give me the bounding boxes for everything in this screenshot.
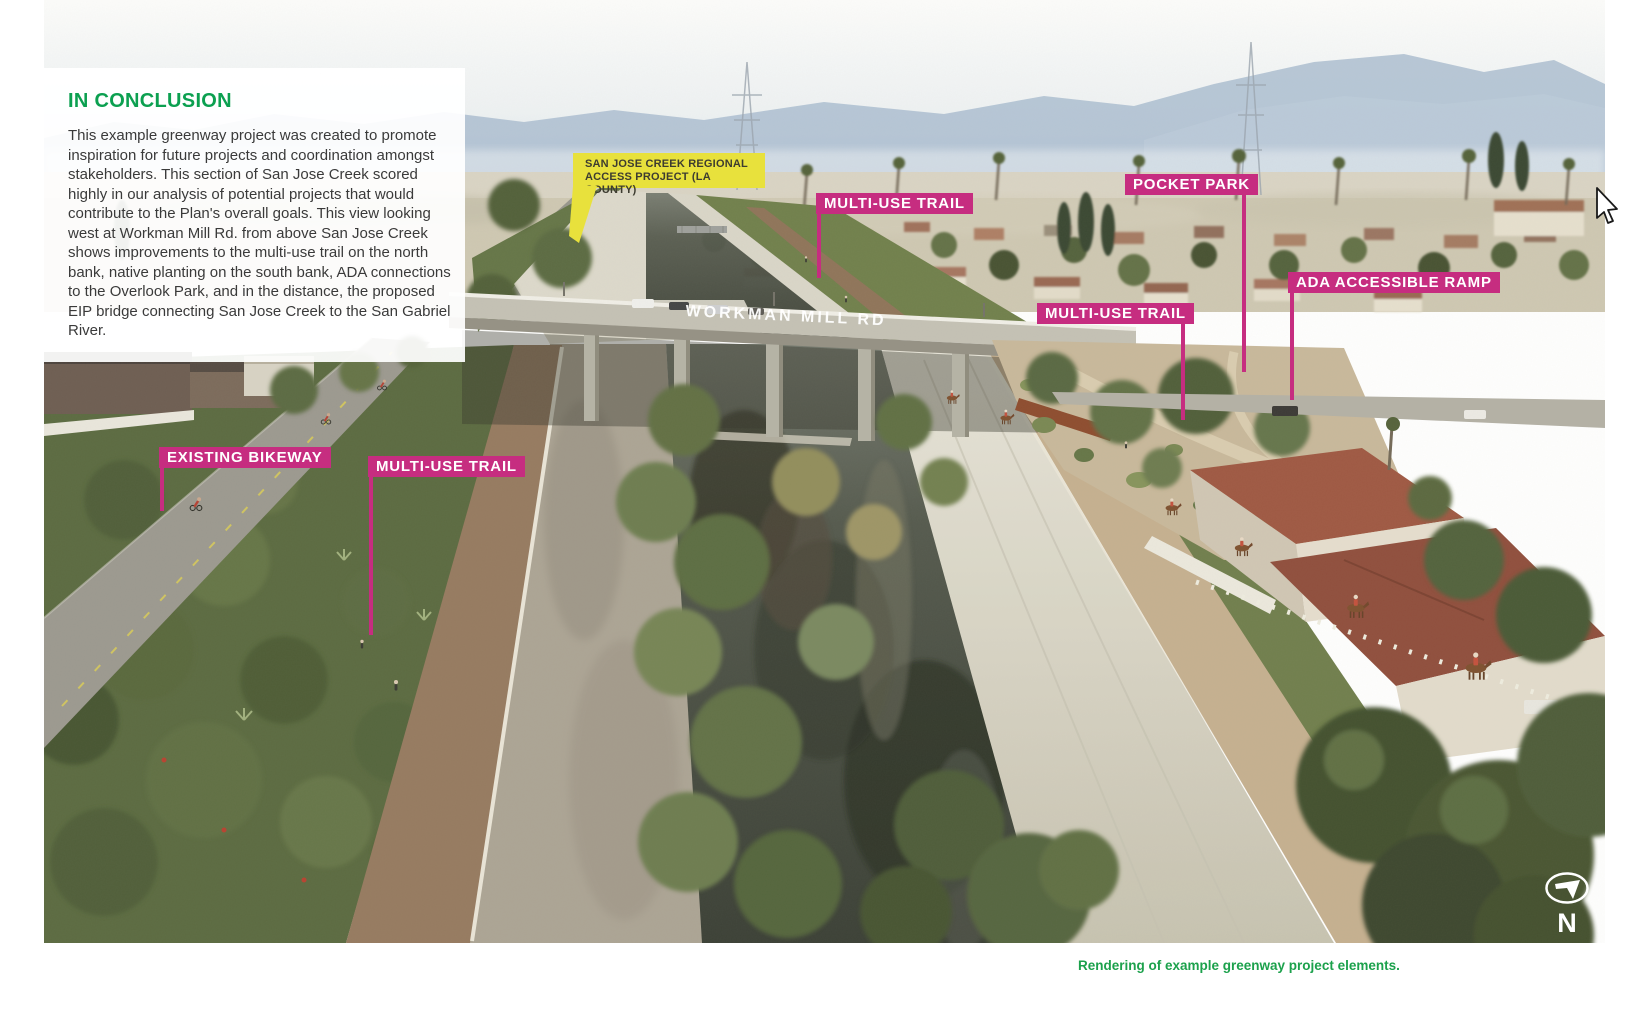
- north-arrow-icon: [1547, 874, 1588, 903]
- north-letter: N: [1557, 908, 1577, 938]
- connector-multi-use-trail-right: [1181, 324, 1185, 420]
- connector-ada-accessible-ramp: [1290, 293, 1294, 400]
- yellow-callout-line1: SAN JOSE CREEK REGIONAL: [585, 158, 765, 171]
- yellow-callout-pointer: [562, 183, 622, 253]
- connector-existing-bikeway: [160, 468, 164, 511]
- conclusion-panel: IN CONCLUSION This example greenway proj…: [44, 68, 465, 362]
- label-ada-accessible-ramp: ADA ACCESSIBLE RAMP: [1288, 272, 1500, 293]
- connector-multi-use-trail-left: [369, 477, 373, 635]
- greenway-rendering: IN CONCLUSION This example greenway proj…: [44, 0, 1605, 943]
- north-arrow: N: [1539, 868, 1595, 942]
- label-existing-bikeway: EXISTING BIKEWAY: [159, 447, 331, 468]
- connector-multi-use-trail-upper: [817, 214, 821, 278]
- conclusion-body: This example greenway project was create…: [68, 126, 460, 341]
- label-pocket-park: POCKET PARK: [1125, 174, 1258, 195]
- image-caption: Rendering of example greenway project el…: [1078, 958, 1400, 973]
- connector-pocket-park: [1242, 195, 1246, 372]
- conclusion-heading: IN CONCLUSION: [68, 90, 465, 113]
- mouse-cursor-icon: [1595, 186, 1623, 228]
- label-multi-use-trail-right: MULTI-USE TRAIL: [1037, 303, 1194, 324]
- label-multi-use-trail-left: MULTI-USE TRAIL: [368, 456, 525, 477]
- label-multi-use-trail-upper: MULTI-USE TRAIL: [816, 193, 973, 214]
